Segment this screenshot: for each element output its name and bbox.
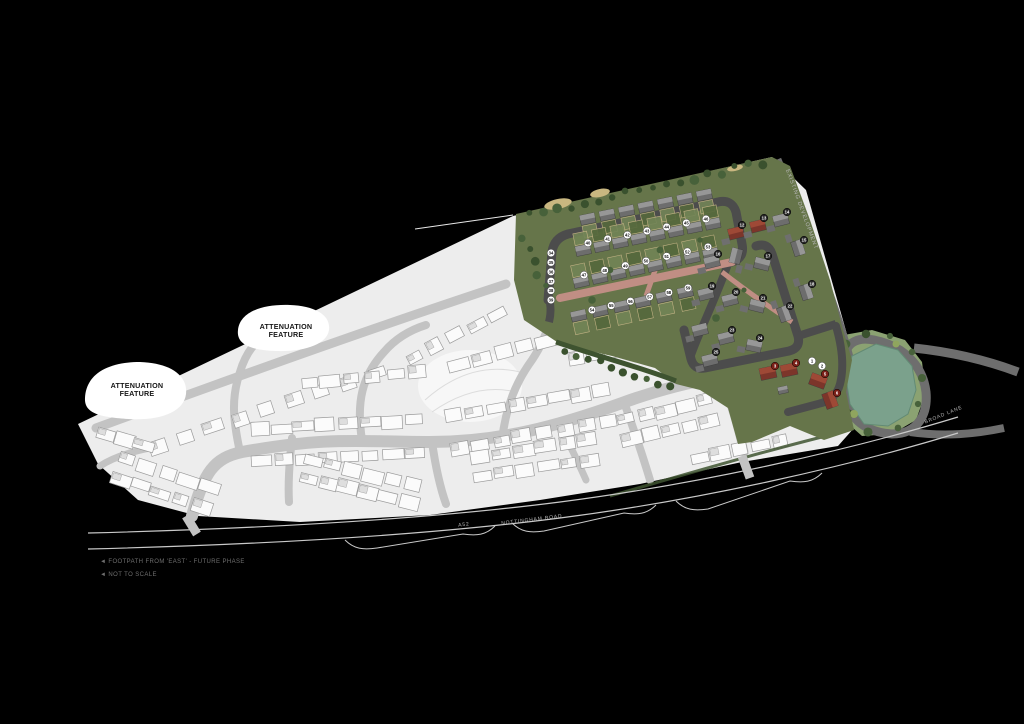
plot-number: 42	[625, 233, 630, 238]
garage-footprint	[558, 425, 565, 432]
tree	[531, 257, 540, 266]
house-footprint	[319, 374, 341, 388]
plot-number: 37	[549, 279, 554, 284]
plot-number: 25	[714, 350, 719, 355]
attenuation-feature-west: ATTENUATION FEATURE	[85, 362, 186, 419]
garage-footprint	[409, 366, 417, 373]
house-footprint	[271, 424, 293, 435]
plot-number: 38	[549, 288, 554, 293]
plot-number: 41	[605, 237, 610, 242]
tree	[539, 208, 548, 217]
garage-footprint	[710, 448, 719, 456]
plot-number: 16	[716, 252, 721, 257]
tree	[918, 374, 926, 382]
plot-number: 48	[602, 268, 607, 273]
tree	[712, 314, 720, 322]
attenuation-label-2-line2: FEATURE	[269, 330, 304, 339]
tree	[677, 179, 684, 186]
tree	[663, 181, 670, 188]
plot-number: 56	[628, 299, 633, 304]
house-footprint	[382, 448, 404, 459]
plot-number: 23	[730, 328, 735, 333]
tree	[585, 356, 592, 363]
tree	[608, 364, 616, 372]
tree	[588, 296, 596, 304]
house-footprint	[535, 425, 552, 440]
garage-footprint	[579, 420, 587, 427]
garage-footprint	[560, 438, 567, 445]
garage-footprint	[510, 400, 517, 408]
garage-footprint	[365, 373, 371, 379]
plot-number: 52	[685, 249, 690, 254]
tree	[543, 283, 548, 288]
house-footprint	[362, 451, 378, 461]
tree	[718, 171, 726, 179]
plot-number: 19	[710, 284, 715, 289]
garage-footprint	[495, 438, 502, 444]
plot-number: 34	[549, 251, 554, 256]
plot-number: 59	[686, 286, 691, 291]
tree	[915, 401, 921, 407]
a-road-ref-label: A52	[458, 521, 470, 528]
plot-number: 57	[647, 294, 652, 299]
tree	[666, 382, 674, 390]
tree	[731, 163, 737, 169]
garage-footprint	[773, 436, 780, 443]
tree	[744, 160, 751, 167]
tree	[518, 235, 525, 242]
tree	[527, 246, 533, 252]
house-footprint	[599, 414, 617, 429]
tree	[657, 247, 664, 254]
tree	[526, 210, 532, 216]
tree	[690, 175, 700, 185]
house-footprint	[470, 449, 490, 465]
tree	[631, 373, 639, 381]
house-footprint	[381, 415, 403, 429]
plot-number: 15	[802, 238, 807, 243]
east-road	[914, 348, 1018, 372]
garage-footprint	[344, 375, 350, 380]
garage-footprint	[451, 443, 459, 451]
tree	[619, 368, 627, 376]
tree	[895, 425, 902, 432]
tree	[697, 237, 702, 242]
garage-footprint	[639, 409, 646, 416]
attenuation-label-1-line2: FEATURE	[120, 389, 155, 398]
site-plan-map: ATTENUATION FEATURE ATTENUATION FEATURE …	[0, 0, 1024, 724]
tree	[568, 205, 574, 211]
garage-footprint	[577, 434, 586, 442]
plot-number: 12	[740, 223, 745, 228]
plot-number: 51	[664, 254, 669, 259]
house-footprint	[444, 407, 462, 423]
garden	[573, 320, 589, 335]
tree	[650, 185, 656, 191]
note-line-1: ◄ FOOTPATH FROM 'EAST' - FUTURE PHASE	[100, 559, 245, 565]
garage-footprint	[465, 408, 473, 414]
house-footprint	[387, 368, 404, 379]
plot-number: 47	[582, 273, 587, 278]
garage-footprint	[534, 441, 544, 448]
garden	[628, 220, 644, 235]
plot-number: 18	[810, 282, 815, 287]
plot-number: 50	[644, 259, 649, 264]
plot-number: 54	[590, 308, 595, 313]
house-footprint	[591, 382, 610, 398]
plot-number: 14	[785, 210, 790, 215]
plot-number: 21	[761, 296, 766, 301]
tree	[644, 376, 650, 382]
garden	[658, 301, 674, 316]
garage-footprint	[406, 449, 414, 455]
garage-footprint	[697, 395, 704, 402]
garage-footprint	[276, 454, 283, 460]
garage-footprint	[513, 446, 523, 453]
house-footprint	[251, 455, 272, 467]
garage-footprint	[340, 418, 348, 424]
garage-footprint	[562, 460, 569, 466]
plot-number: 35	[549, 260, 554, 265]
house-footprint	[515, 463, 535, 479]
plot-number: 24	[758, 336, 763, 341]
plot-number: 20	[734, 290, 739, 295]
garage-footprint	[494, 468, 502, 474]
garden	[637, 306, 653, 321]
house-footprint	[314, 417, 334, 432]
garage-footprint	[493, 450, 501, 456]
plot-number: 13	[762, 216, 767, 221]
tree	[654, 381, 662, 389]
garage-footprint	[293, 422, 302, 427]
lay-by	[345, 526, 495, 549]
house-footprint	[302, 377, 318, 388]
plot-number: 49	[623, 263, 628, 268]
tree	[581, 200, 589, 208]
house-footprint	[251, 421, 270, 436]
plot-number: 17	[766, 254, 771, 259]
tree	[862, 330, 870, 338]
tree	[573, 353, 580, 360]
tree	[758, 160, 767, 169]
garage-footprint	[571, 389, 580, 397]
tree	[597, 357, 604, 364]
plot-number: 40	[586, 241, 591, 246]
tree	[887, 333, 893, 339]
tree	[561, 348, 568, 355]
garden	[616, 311, 632, 326]
bush	[893, 341, 900, 348]
plot-number: 58	[666, 290, 671, 295]
plot-number: 46	[704, 217, 709, 222]
garage-footprint	[511, 430, 520, 438]
garage-footprint	[580, 456, 589, 463]
tree	[622, 188, 629, 195]
tree	[552, 203, 562, 213]
tree	[741, 287, 746, 292]
tree	[636, 187, 642, 193]
plot-number: 39	[549, 298, 554, 303]
note-line-2: ◄ NOT TO SCALE	[100, 572, 157, 578]
tree	[909, 349, 916, 356]
tree	[863, 427, 872, 436]
site-plan-canvas: ATTENUATION FEATURE ATTENUATION FEATURE …	[0, 0, 1024, 724]
garage-footprint	[361, 418, 369, 423]
lay-by	[676, 473, 822, 510]
attenuation-feature-north: ATTENUATION FEATURE	[238, 305, 329, 351]
garden	[594, 315, 610, 330]
tree	[595, 198, 602, 205]
garage-footprint	[527, 397, 536, 404]
tree	[609, 194, 615, 200]
street	[289, 438, 292, 502]
plot-number: 53	[706, 245, 711, 250]
plot-number: 55	[609, 303, 614, 308]
house-footprint	[405, 414, 422, 425]
a-road-name-label: NOTTINGHAM ROAD	[501, 513, 563, 526]
house-footprint	[341, 451, 359, 462]
plot-number: 45	[684, 221, 689, 226]
plot-number: 36	[549, 269, 554, 274]
plot-number: 22	[788, 304, 793, 309]
plot-number: 43	[645, 229, 650, 234]
plot-number: 44	[664, 225, 669, 230]
tree	[533, 271, 541, 279]
tree	[703, 169, 711, 177]
